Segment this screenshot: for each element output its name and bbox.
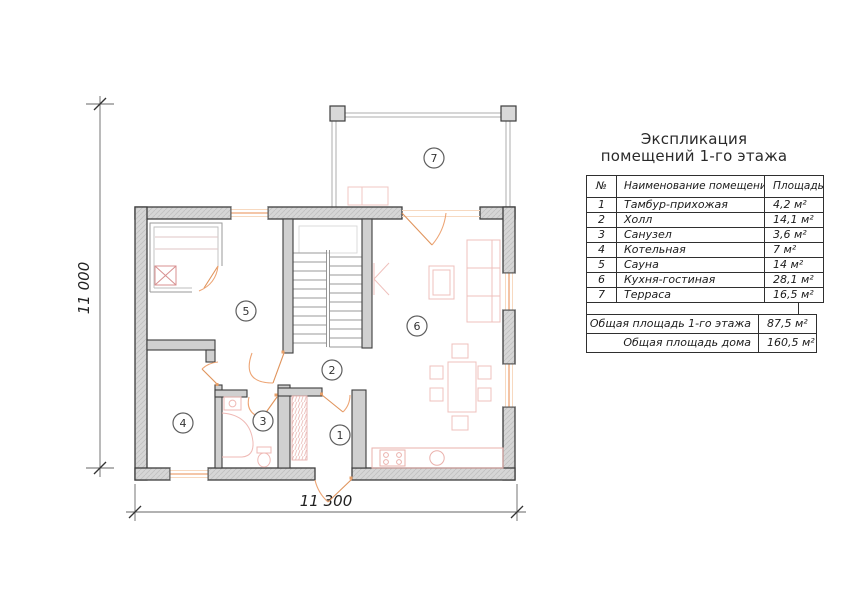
bathroom-shower: [222, 413, 253, 457]
svg-text:6: 6: [414, 320, 421, 333]
schedule-title-line2: помещений 1-го этажа: [586, 148, 802, 165]
room-marker-1: 1: [330, 425, 350, 445]
bathroom-fixtures: [222, 397, 271, 467]
table-row: 3Санузел3,6 м²: [587, 227, 824, 242]
sauna-door: [199, 266, 218, 291]
wall-room5-room4: [147, 340, 215, 350]
toilet: [257, 447, 271, 467]
room-marker-4: 4: [173, 413, 193, 433]
room-marker-7: 7: [424, 148, 444, 168]
room-schedule: Экспликация помещений 1-го этажа № Наиме…: [586, 131, 802, 353]
sauna-benches: [155, 237, 218, 249]
table-row: 1Тамбур-прихожая4,2 м²: [587, 197, 824, 212]
table-row: 5Сауна14 м²: [587, 257, 824, 272]
col-header-area: Площадь: [765, 175, 824, 197]
armchair: [429, 266, 454, 299]
dimension-height: 11 000: [75, 96, 114, 477]
stair-wall-right: [362, 219, 372, 348]
schedule-header-row: № Наименование помещения Площадь: [587, 175, 824, 197]
door-room5: [249, 353, 284, 383]
wall-room3-room1: [278, 385, 290, 468]
wall-room3-top: [215, 390, 247, 397]
bathroom-sink: [224, 397, 241, 410]
terrace-column: [501, 106, 516, 121]
room-marker-6: 6: [407, 316, 427, 336]
dimension-width: 11 300: [126, 484, 526, 521]
table-row: 6Кухня-гостиная28,1 м²: [587, 272, 824, 287]
room-marker-2: 2: [322, 360, 342, 380]
totals-table: Общая площадь 1-го этажа 87,5 м² Общая п…: [586, 314, 817, 353]
dining-chair: [430, 366, 443, 379]
sauna-cabin: [150, 223, 222, 292]
dining-table: [430, 344, 491, 430]
window-bottom: [170, 468, 208, 480]
table-row: 2Холл14,1 м²: [587, 212, 824, 227]
window-top: [231, 207, 268, 219]
sofa: [467, 240, 500, 322]
col-header-num: №: [587, 175, 617, 197]
table-row: 4Котельная7 м²: [587, 242, 824, 257]
wall-room1-cap: [278, 388, 322, 396]
wall-top: [135, 207, 231, 219]
svg-text:5: 5: [243, 305, 250, 318]
total-row: Общая площадь 1-го этажа 87,5 м²: [587, 314, 817, 333]
stair-treads-right: [330, 257, 362, 347]
wardrobe: [292, 396, 307, 460]
terrace-furniture: [348, 187, 388, 205]
door-room4: [202, 362, 218, 385]
door-room1: [322, 395, 350, 412]
schedule-table: № Наименование помещения Площадь 1Тамбур…: [586, 175, 824, 303]
sauna-stove: [155, 266, 176, 285]
doors: [202, 211, 480, 503]
schedule-gap: [586, 303, 799, 314]
dining-chair: [430, 388, 443, 401]
fireplace-symbol: [374, 263, 389, 295]
table-row: 7Терраса16,5 м²: [587, 287, 824, 302]
terrace-column: [330, 106, 345, 121]
col-header-name: Наименование помещения: [617, 175, 765, 197]
window-right-upper: [503, 273, 515, 310]
svg-text:4: 4: [180, 417, 187, 430]
wall-right: [503, 310, 515, 364]
dimension-width-label: 11 300: [300, 492, 353, 510]
terrace-outline: [330, 106, 516, 207]
dimension-height-label: 11 000: [75, 262, 93, 315]
living-furniture: [372, 240, 503, 468]
stairs: [294, 226, 362, 347]
svg-text:1: 1: [337, 429, 344, 442]
dining-chair: [452, 416, 468, 430]
stair-treads-left: [294, 253, 327, 343]
wall-left: [135, 207, 147, 480]
wall-bottom: [352, 468, 515, 480]
wall-bottom: [208, 468, 315, 480]
schedule-title: Экспликация помещений 1-го этажа: [586, 131, 802, 165]
kitchen-sink: [430, 451, 444, 465]
room-marker-3: 3: [253, 411, 273, 431]
wall-right: [503, 207, 515, 273]
total-row: Общая площадь дома 160,5 м²: [587, 333, 817, 352]
window-right-lower: [503, 364, 515, 407]
room-markers: 1 2 3 4 5 6 7: [173, 148, 444, 445]
schedule-title-line1: Экспликация: [586, 131, 802, 148]
svg-text:3: 3: [260, 415, 267, 428]
dining-chair: [478, 366, 491, 379]
kitchen-counter: [372, 448, 503, 468]
wall-bottom: [135, 468, 170, 480]
wall-top: [268, 207, 402, 219]
wall-room5-room4-stub: [206, 350, 215, 362]
wall-room1-room6: [352, 390, 366, 468]
dining-chair: [452, 344, 468, 358]
dining-chair: [478, 388, 491, 401]
svg-text:2: 2: [329, 364, 336, 377]
stair-wall-left: [283, 219, 293, 353]
svg-text:7: 7: [431, 152, 438, 165]
room-marker-5: 5: [236, 301, 256, 321]
